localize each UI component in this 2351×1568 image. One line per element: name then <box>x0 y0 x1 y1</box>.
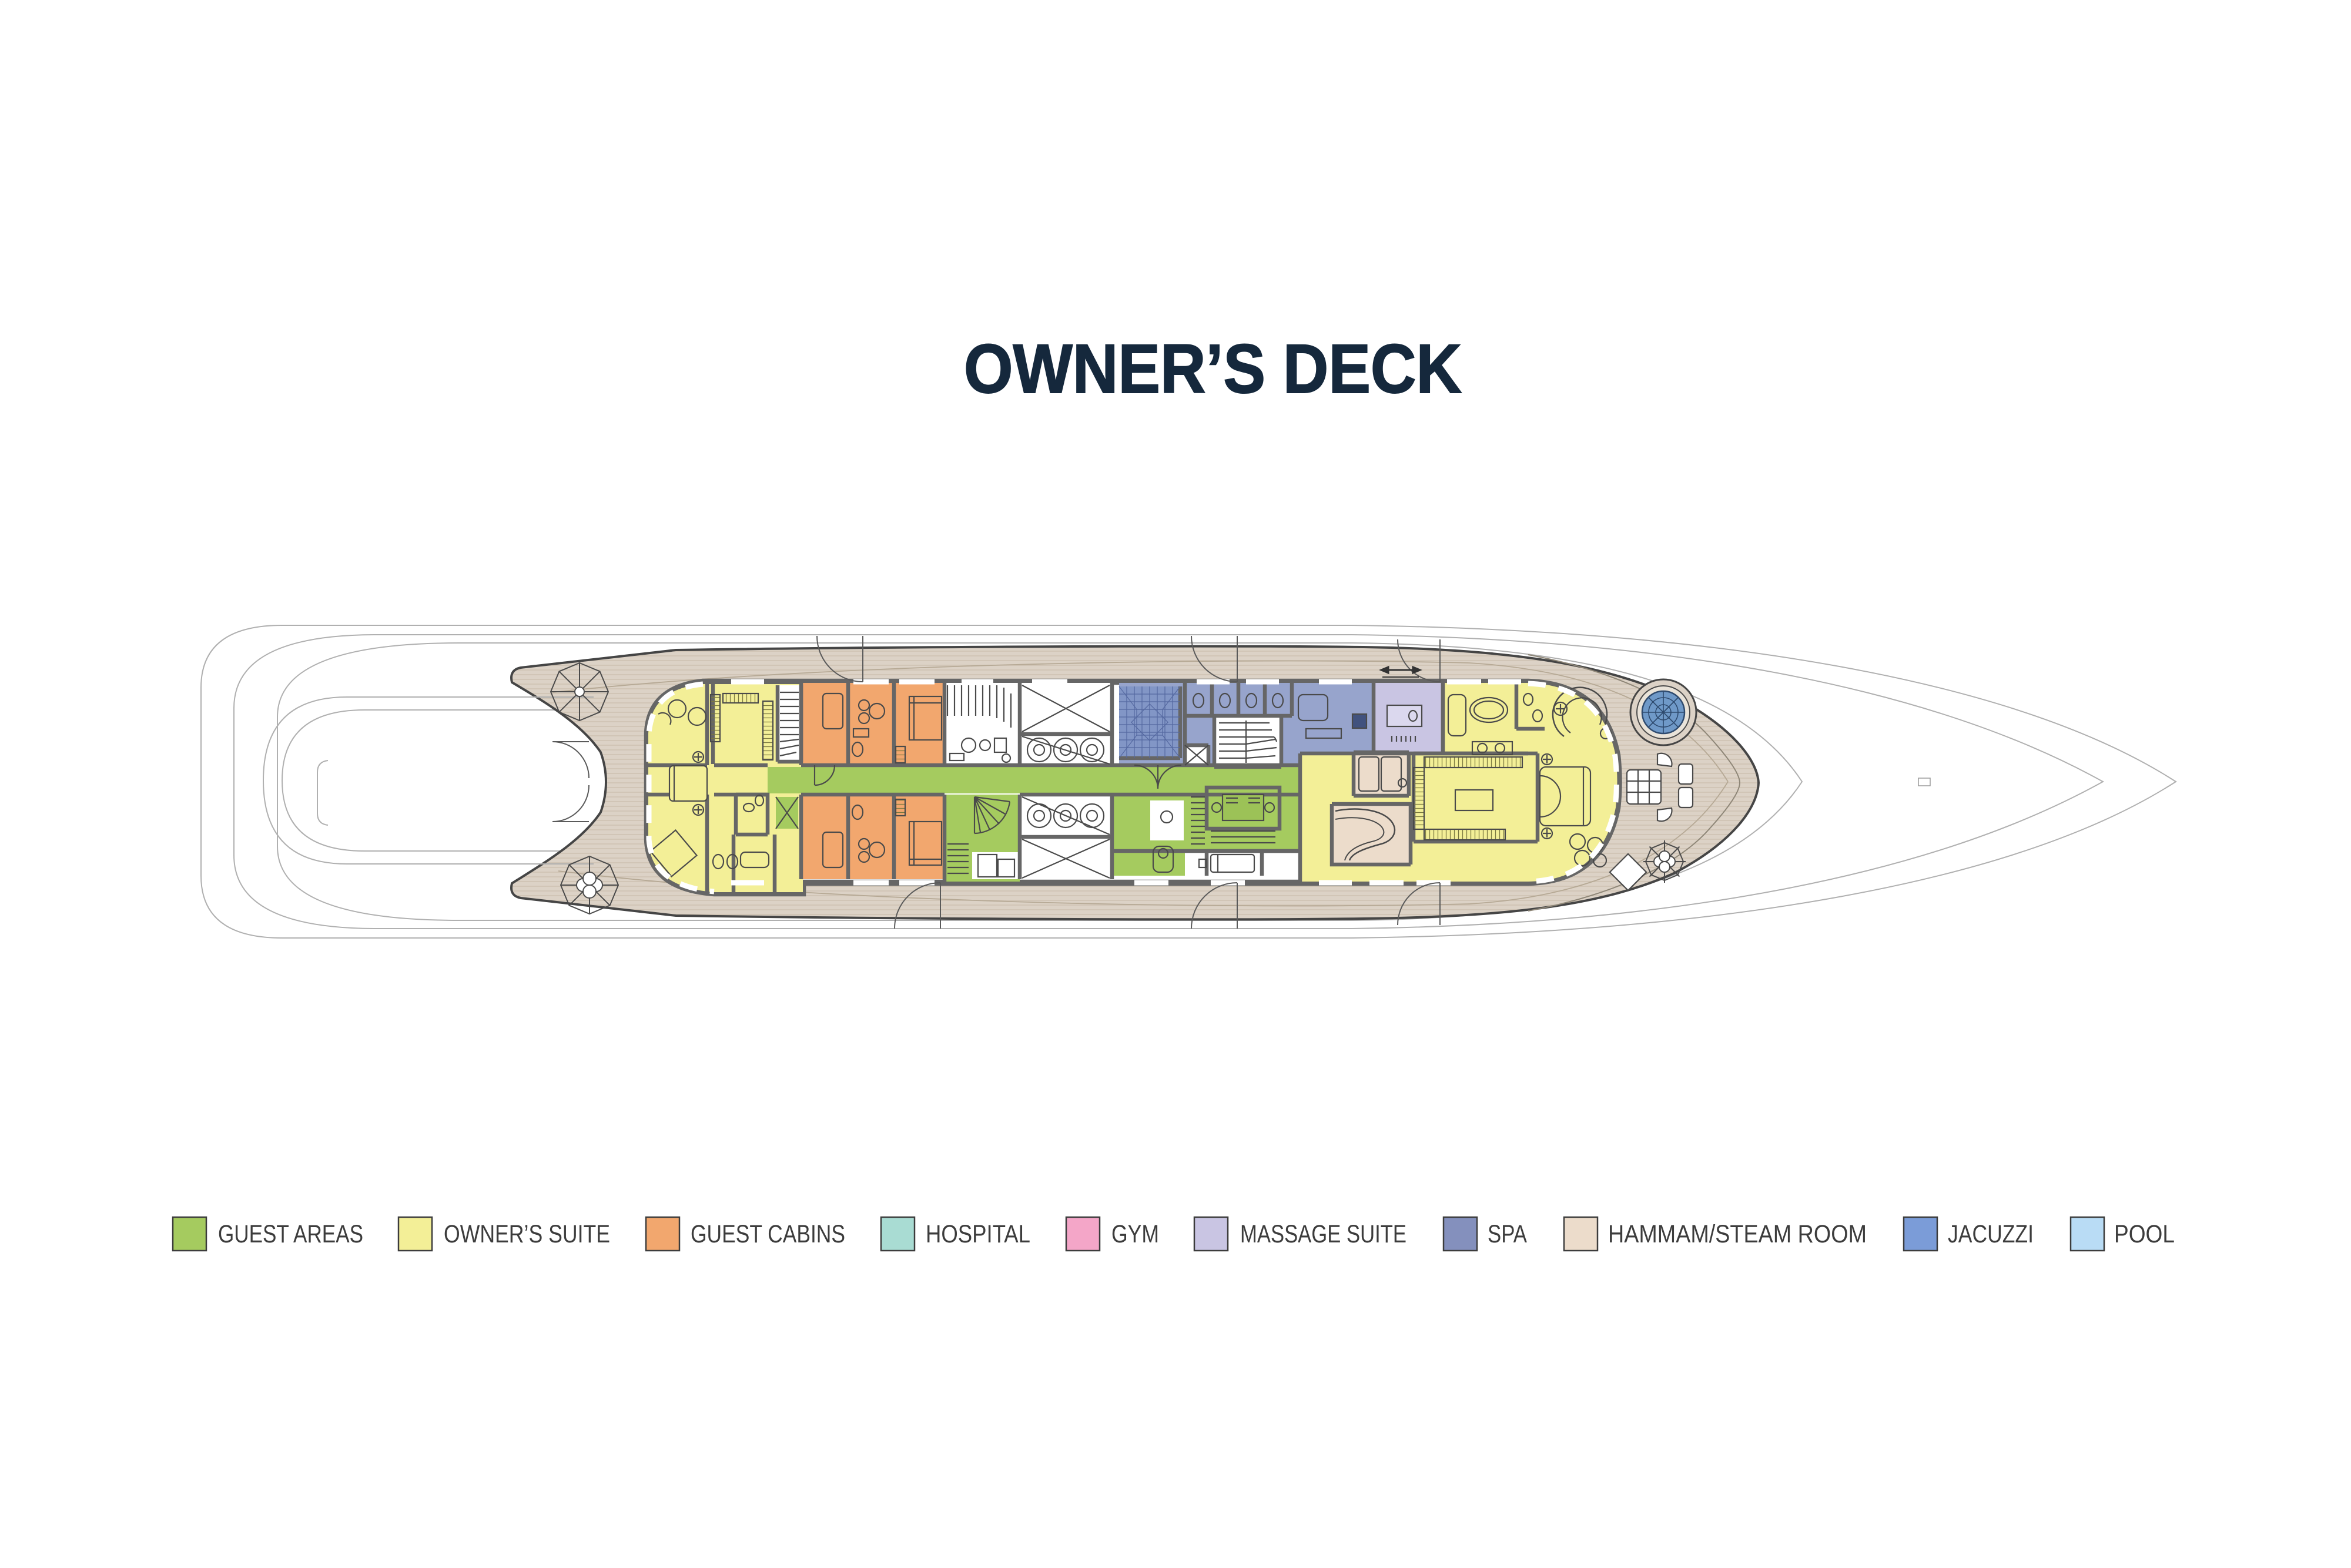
svg-text:MASSAGE SUITE: MASSAGE SUITE <box>1240 1220 1406 1248</box>
svg-text:OWNER’S DECK: OWNER’S DECK <box>964 330 1462 408</box>
svg-text:JACUZZI: JACUZZI <box>1948 1220 2034 1248</box>
svg-text:GUEST AREAS: GUEST AREAS <box>218 1220 363 1248</box>
svg-text:GUEST CABINS: GUEST CABINS <box>691 1220 845 1248</box>
svg-text:HOSPITAL: HOSPITAL <box>926 1220 1030 1248</box>
svg-text:GYM: GYM <box>1111 1220 1159 1248</box>
svg-text:SPA: SPA <box>1488 1220 1527 1248</box>
svg-text:HAMMAM/STEAM ROOM: HAMMAM/STEAM ROOM <box>1608 1220 1867 1248</box>
svg-text:OWNER’S SUITE: OWNER’S SUITE <box>444 1220 610 1248</box>
svg-text:POOL: POOL <box>2114 1220 2175 1248</box>
